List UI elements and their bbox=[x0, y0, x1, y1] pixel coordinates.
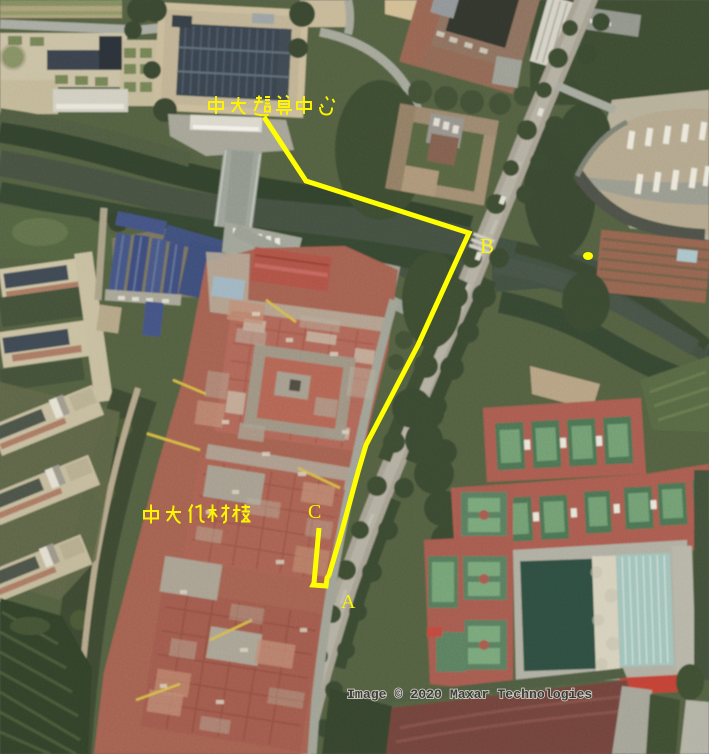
svg-text:A: A bbox=[341, 591, 356, 613]
svg-text:B: B bbox=[480, 234, 494, 258]
svg-text:C: C bbox=[308, 501, 321, 523]
svg-text:Image © 2020 Maxar Technologie: Image © 2020 Maxar Technologies bbox=[347, 687, 592, 702]
